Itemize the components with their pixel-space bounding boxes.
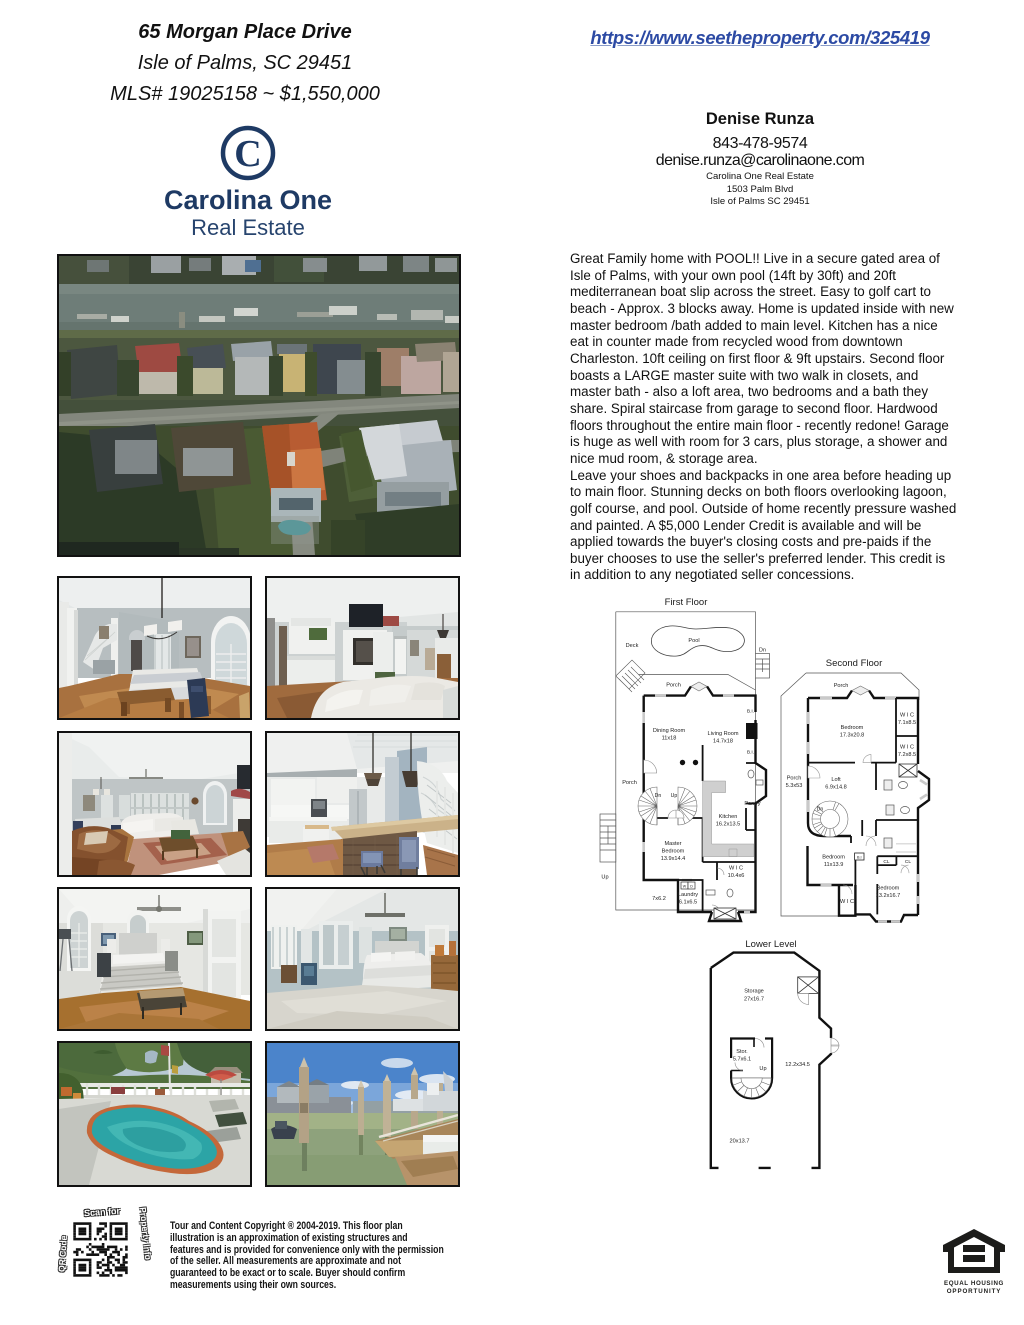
svg-text:W I C: W I C	[900, 745, 914, 751]
svg-text:W I C: W I C	[840, 899, 854, 905]
svg-text:17.3x20.8: 17.3x20.8	[840, 733, 865, 739]
svg-text:EQUAL HOUSING: EQUAL HOUSING	[944, 1280, 1004, 1287]
svg-text:Kitchen: Kitchen	[719, 814, 738, 820]
svg-text:Loft: Loft	[831, 777, 841, 783]
svg-text:D: D	[690, 884, 693, 888]
svg-text:Up: Up	[601, 875, 608, 881]
svg-text:13.9x14.4: 13.9x14.4	[661, 856, 686, 862]
svg-text:11x18: 11x18	[662, 736, 677, 742]
svg-text:CL: CL	[883, 859, 889, 865]
svg-text:Bedroom: Bedroom	[662, 849, 685, 855]
svg-text:27x16.7: 27x16.7	[744, 997, 764, 1003]
svg-text:Porch: Porch	[834, 683, 849, 689]
svg-text:Living Room: Living Room	[707, 731, 738, 737]
svg-text:Bedroom: Bedroom	[822, 855, 845, 861]
svg-text:Bedroom: Bedroom	[841, 725, 864, 731]
svg-text:7.1x8.5: 7.1x8.5	[898, 720, 916, 726]
svg-text:7.2x8.5: 7.2x8.5	[898, 752, 916, 758]
svg-text:Second Floor: Second Floor	[826, 658, 883, 669]
svg-text:W: W	[683, 884, 687, 888]
svg-text:Up: Up	[671, 793, 678, 799]
svg-text:Pool: Pool	[688, 638, 699, 644]
svg-text:Dn: Dn	[655, 793, 662, 799]
svg-text:Storage: Storage	[744, 989, 764, 995]
svg-text:Dn: Dn	[759, 648, 766, 654]
svg-text:7x6.2: 7x6.2	[652, 896, 666, 902]
svg-text:First Floor: First Floor	[665, 597, 708, 608]
svg-text:12.2x34.5: 12.2x34.5	[785, 1062, 810, 1068]
svg-text:14.7x18: 14.7x18	[713, 739, 733, 745]
svg-text:Bedroom: Bedroom	[877, 886, 900, 892]
svg-text:Pantry: Pantry	[744, 801, 760, 807]
svg-text:Stor.: Stor.	[736, 1049, 748, 1055]
svg-text:W I C: W I C	[900, 713, 914, 719]
svg-text:20x13.7: 20x13.7	[730, 1139, 750, 1145]
svg-text:Master: Master	[664, 841, 681, 847]
svg-text:5.7x6.1: 5.7x6.1	[733, 1057, 751, 1063]
svg-text:OPPORTUNITY: OPPORTUNITY	[947, 1288, 1002, 1295]
svg-text:Laundry: Laundry	[678, 892, 698, 898]
svg-text:C: C	[234, 133, 261, 175]
svg-text:6.1x6.5: 6.1x6.5	[679, 900, 697, 906]
svg-text:11x13.9: 11x13.9	[824, 862, 844, 868]
svg-text:Dn: Dn	[817, 807, 824, 813]
svg-text:Porch: Porch	[622, 780, 637, 786]
svg-text:B.I.: B.I.	[747, 709, 754, 715]
svg-text:W I C: W I C	[729, 866, 743, 872]
svg-text:16.2x13.5: 16.2x13.5	[716, 822, 741, 828]
svg-text:Lower Level: Lower Level	[745, 939, 796, 950]
svg-text:13.2x16.7: 13.2x16.7	[876, 893, 901, 899]
svg-text:CL: CL	[905, 859, 911, 865]
svg-text:10.4x6: 10.4x6	[728, 873, 745, 879]
svg-text:Porch: Porch	[787, 776, 802, 782]
svg-text:Deck: Deck	[626, 643, 639, 649]
svg-text:B.I.: B.I.	[747, 750, 754, 756]
svg-text:Up: Up	[759, 1066, 766, 1072]
svg-text:5.3x53: 5.3x53	[786, 783, 803, 789]
svg-text:B.I: B.I	[857, 855, 862, 859]
svg-text:Dining Room: Dining Room	[653, 728, 686, 734]
svg-text:6.9x14.8: 6.9x14.8	[825, 785, 846, 791]
svg-text:Porch: Porch	[666, 683, 681, 689]
